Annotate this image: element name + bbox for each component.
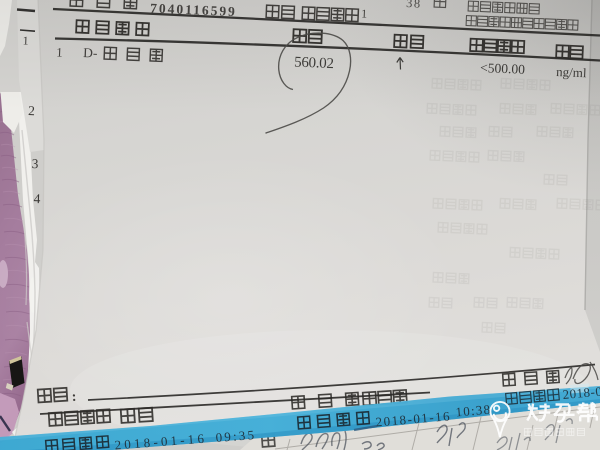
svg-text::: :: [71, 390, 77, 405]
svg-text:1: 1: [361, 7, 368, 21]
svg-text:560.02: 560.02: [294, 55, 334, 73]
svg-text:<500.00: <500.00: [480, 60, 526, 77]
svg-text:10:38: 10:38: [455, 402, 492, 420]
svg-text:3: 3: [31, 156, 39, 171]
svg-text:2018-0: 2018-0: [562, 384, 600, 402]
svg-text:D-: D-: [83, 45, 98, 61]
svg-text:1: 1: [56, 45, 63, 60]
svg-text:38: 38: [406, 0, 422, 11]
svg-text:ng/ml: ng/ml: [556, 64, 587, 80]
svg-text:09:35: 09:35: [215, 427, 257, 445]
svg-text:4: 4: [33, 191, 41, 206]
